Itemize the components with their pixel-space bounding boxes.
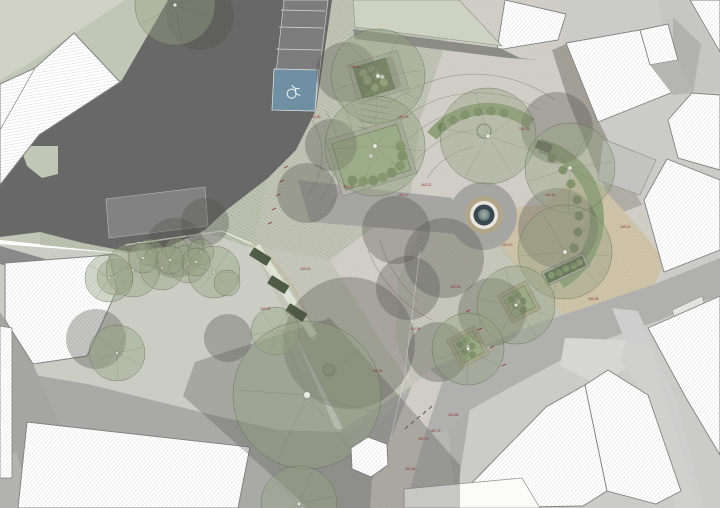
svg-text:163.13: 163.13 — [620, 225, 630, 229]
svg-text:162.95: 162.95 — [260, 307, 270, 311]
svg-text:163.30: 163.30 — [310, 115, 320, 119]
svg-text:163.05: 163.05 — [450, 285, 460, 289]
svg-text:163.02: 163.02 — [300, 267, 310, 271]
svg-text:163.28: 163.28 — [398, 115, 408, 119]
svg-text:163.40: 163.40 — [350, 65, 360, 69]
svg-text:163.15: 163.15 — [545, 193, 555, 197]
svg-text:163.08: 163.08 — [588, 297, 598, 301]
svg-text:163.22: 163.22 — [398, 193, 408, 197]
svg-text:163.18: 163.18 — [519, 127, 529, 131]
svg-text:163.25: 163.25 — [343, 185, 353, 189]
svg-text:162.66: 162.66 — [405, 467, 415, 471]
svg-text:162.72: 162.72 — [430, 429, 440, 433]
svg-text:163.21: 163.21 — [421, 183, 431, 187]
svg-text:162.98: 162.98 — [410, 327, 420, 331]
svg-text:163.10: 163.10 — [502, 243, 512, 247]
svg-text:162.90: 162.90 — [372, 369, 382, 373]
svg-text:162.70: 162.70 — [418, 437, 428, 441]
svg-text:162.88: 162.88 — [448, 413, 458, 417]
